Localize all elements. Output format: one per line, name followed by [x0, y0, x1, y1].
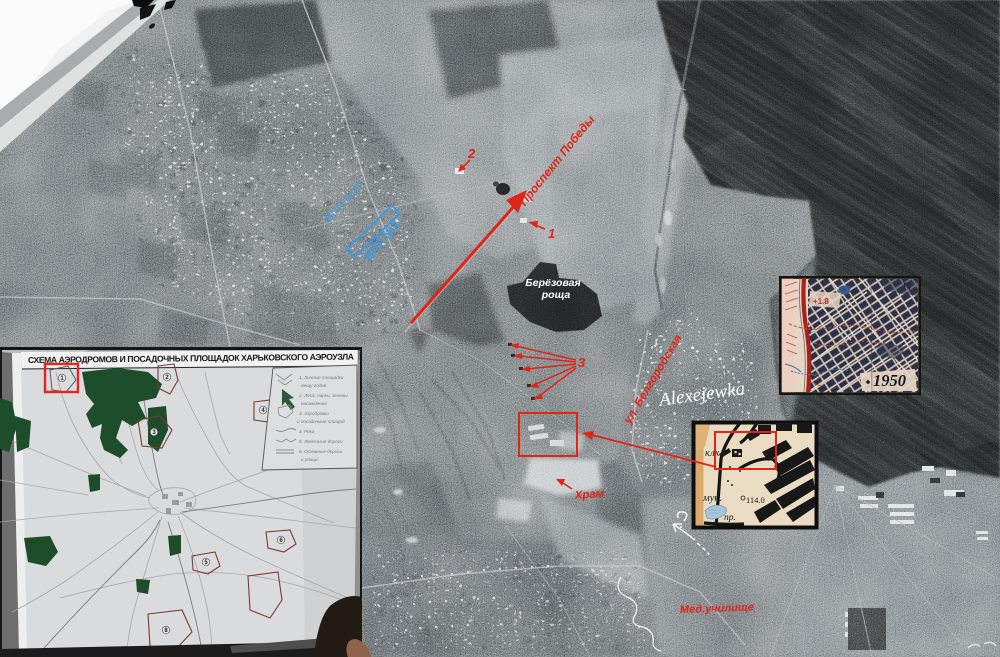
- svg-text:и посадочные площад: и посадочные площад: [297, 419, 345, 424]
- svg-text:2. Леса, парки, зелены: 2. Леса, парки, зелены: [298, 393, 348, 398]
- svg-text:+1.8: +1.8: [813, 297, 829, 306]
- svg-text:Берёзовая: Берёзовая: [525, 277, 580, 289]
- svg-text:и улицы: и улицы: [301, 457, 319, 462]
- svg-text:насаждения: насаждения: [301, 401, 327, 406]
- svg-text:3: 3: [578, 355, 586, 370]
- svg-text:1: 1: [548, 226, 555, 241]
- svg-text:роща: роща: [541, 289, 571, 301]
- svg-text:1. Личные площадки: 1. Личные площадки: [299, 375, 344, 380]
- svg-text:1950: 1950: [873, 371, 906, 390]
- svg-text:мук.: мук.: [702, 493, 722, 504]
- svg-text:П: П: [903, 281, 911, 293]
- svg-text:лещу-годов: лещу-годов: [300, 383, 327, 388]
- svg-text:114.0: 114.0: [746, 495, 765, 505]
- svg-text:2: 2: [467, 146, 476, 161]
- svg-text:пр.: пр.: [724, 513, 736, 523]
- svg-text:клх.: клх.: [705, 448, 722, 459]
- svg-text:3. Аэродромы: 3. Аэродромы: [299, 411, 329, 416]
- svg-text:Храм: Храм: [573, 488, 605, 502]
- svg-text:5. Железные дороги: 5. Железные дороги: [299, 439, 343, 444]
- svg-text:4. Река: 4. Река: [299, 429, 315, 434]
- svg-text:6. Основные дороги: 6. Основные дороги: [299, 449, 343, 454]
